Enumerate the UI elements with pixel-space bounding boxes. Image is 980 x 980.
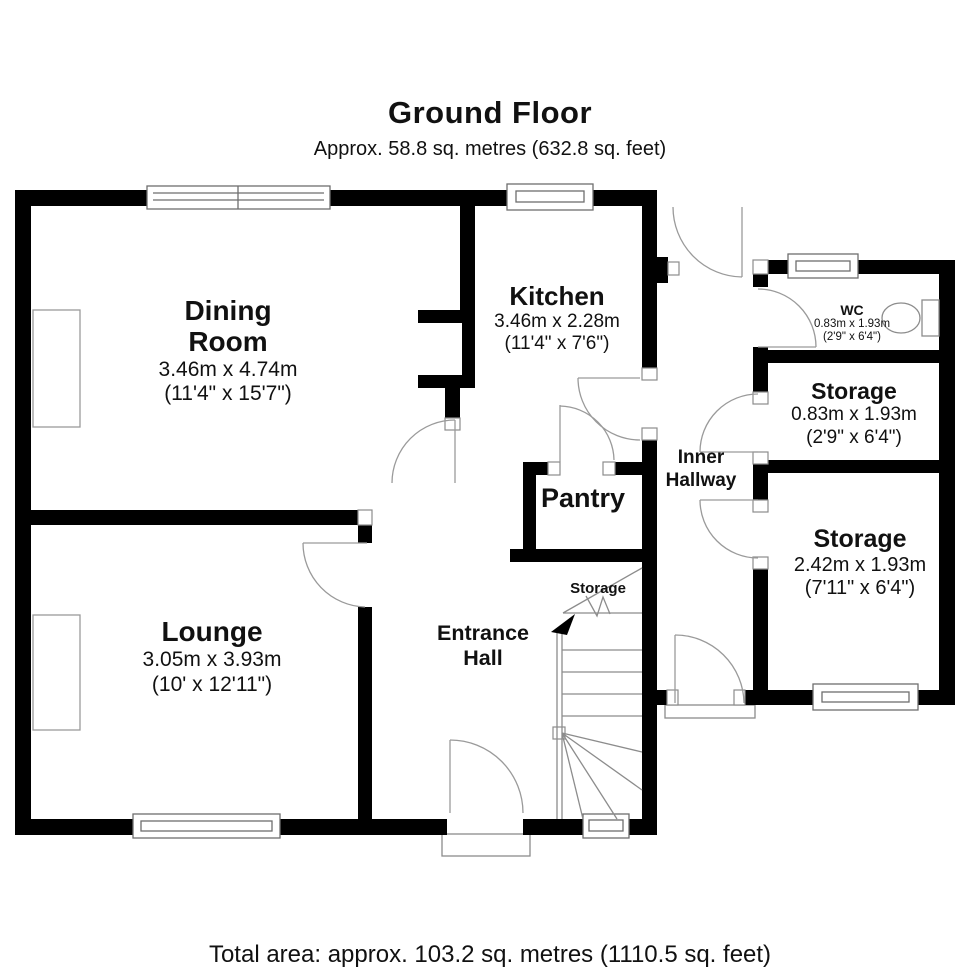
storage1-door [700, 394, 758, 452]
room-name: Pantry [541, 484, 625, 514]
room-name: Dining Room [159, 296, 298, 358]
room-dims-metric: 3.46m x 4.74m [159, 358, 298, 383]
lounge-door [303, 543, 367, 607]
room-dims-metric: 3.05m x 3.93m [143, 648, 282, 673]
room-name: Storage [570, 581, 626, 598]
stairs [557, 568, 642, 819]
floorplan-drawing [0, 0, 980, 980]
room-dims-metric: 0.83m x 1.93m [791, 404, 917, 426]
toilet-icon [882, 300, 939, 336]
room-label-understairs-storage: Storage [570, 581, 626, 598]
storage-window [813, 684, 918, 710]
kitchen-window [507, 184, 593, 210]
room-dims-metric: 3.46m x 2.28m [494, 311, 620, 333]
room-label-kitchen: Kitchen 3.46m x 2.28m (11'4" x 7'6") [494, 282, 620, 355]
room-dims-imperial: (11'4" x 7'6") [494, 333, 620, 355]
hall-window [583, 814, 629, 838]
room-dims-metric: 2.42m x 1.93m [794, 554, 926, 578]
room-dims-imperial: (2'9" x 6'4") [814, 331, 890, 345]
room-dims-imperial: (7'11" x 6'4") [794, 577, 926, 601]
room-name: Entrance Hall [437, 621, 529, 670]
room-label-storage-lower: Storage 2.42m x 1.93m (7'11" x 6'4") [794, 526, 926, 601]
wc-window [788, 254, 858, 278]
room-label-dining-room: Dining Room 3.46m x 4.74m (11'4" x 15'7"… [159, 296, 298, 407]
stairs-direction-arrow [551, 614, 575, 635]
room-name: WC [814, 303, 890, 318]
floorplan-page: Ground Floor Approx. 58.8 sq. metres (63… [0, 0, 980, 980]
room-dims-imperial: (2'9" x 6'4") [791, 427, 917, 449]
room-label-inner-hallway: Inner Hallway [666, 447, 737, 493]
dining-room-window [147, 186, 330, 209]
room-label-pantry: Pantry [541, 484, 625, 514]
room-label-entrance-hall: Entrance Hall [437, 621, 529, 670]
room-dims-imperial: (11'4" x 15'7") [159, 382, 298, 407]
pantry-door [560, 405, 614, 462]
room-label-wc: WC 0.83m x 1.93m (2'9" x 6'4") [814, 303, 890, 345]
room-name: Storage [794, 526, 926, 554]
room-name: Storage [791, 379, 917, 404]
room-dims-imperial: (10' x 12'11") [143, 673, 282, 698]
kitchen-door [578, 378, 640, 440]
room-name: Kitchen [494, 282, 620, 311]
front-door [450, 740, 523, 813]
room-label-lounge: Lounge 3.05m x 3.93m (10' x 12'11") [143, 617, 282, 697]
room-dims-metric: 0.83m x 1.93m [814, 318, 890, 332]
storage2-door [700, 500, 758, 558]
wc-door [758, 289, 816, 347]
room-name: Inner Hallway [666, 447, 737, 493]
rear-door [673, 207, 742, 277]
room-label-storage-upper: Storage 0.83m x 1.93m (2'9" x 6'4") [791, 379, 917, 449]
lounge-window [133, 814, 280, 838]
room-name: Lounge [143, 617, 282, 648]
total-area-text: Total area: approx. 103.2 sq. metres (11… [209, 941, 771, 969]
